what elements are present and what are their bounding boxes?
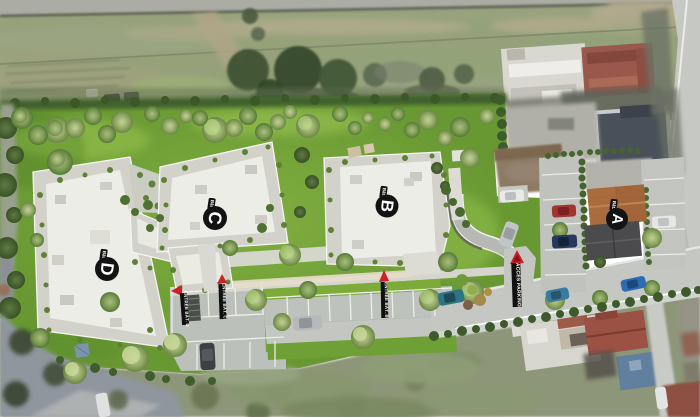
svg-text:A: A — [608, 213, 626, 226]
svg-text:D: D — [96, 261, 117, 276]
svg-text:ENTRÉE BÂT. B: ENTRÉE BÂT. B — [384, 282, 390, 318]
svg-text:B: B — [377, 199, 397, 214]
svg-text:C: C — [204, 210, 225, 225]
